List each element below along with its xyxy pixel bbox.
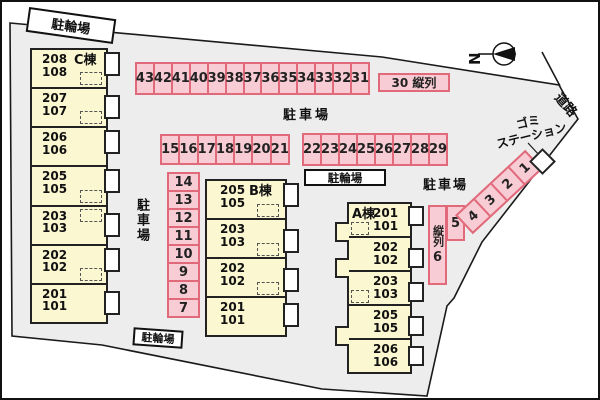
parking-space-29: 29 xyxy=(430,135,446,164)
stair-mark xyxy=(351,290,369,303)
parking-space-36: 36 xyxy=(262,64,280,93)
porch-tab xyxy=(335,326,349,346)
parking-space-24: 24 xyxy=(340,135,358,164)
parking-space-15: 15 xyxy=(162,136,180,163)
stair-mark xyxy=(80,111,102,124)
parking-space-14: 14 xyxy=(169,174,198,192)
parking-column-14-7: 14 13 12 11 10 9 8 7 xyxy=(167,172,200,318)
building-c-name: C棟 xyxy=(74,54,97,68)
parking-space-8: 8 xyxy=(169,282,198,300)
parking-space-20: 20 xyxy=(253,136,271,163)
parking-space-43: 43 xyxy=(137,64,155,93)
parking-space-25: 25 xyxy=(358,135,376,164)
parking-space-19: 19 xyxy=(235,136,253,163)
building-b-name: B棟 xyxy=(249,185,272,199)
entrance-notch xyxy=(104,213,120,237)
compass-north-arrow: N xyxy=(466,43,516,65)
stair-mark xyxy=(80,190,102,203)
parking-space-31: 31 xyxy=(352,64,368,93)
room-a-202: 202102 xyxy=(349,238,410,272)
room-c-201: 201101 xyxy=(32,285,106,322)
parking-lot-label-east: 駐車場 xyxy=(423,174,468,193)
road-edge-line xyxy=(542,52,560,86)
room-b-202: 202102 xyxy=(207,259,285,298)
stair-mark xyxy=(257,243,279,256)
entrance-notch xyxy=(283,303,299,327)
entrance-notch xyxy=(408,206,424,226)
compass-n-label: N xyxy=(466,52,484,65)
building-b: B棟 205105 203103 202102 201101 xyxy=(205,179,287,337)
stair-mark xyxy=(351,222,369,235)
entrance-notch xyxy=(283,268,299,292)
entrance-notch xyxy=(283,229,299,253)
parking-space-30-tandem: 30 縦列 xyxy=(378,73,450,92)
entrance-notch xyxy=(104,248,120,272)
entrance-notch xyxy=(408,316,424,336)
parking-space-13: 13 xyxy=(169,192,198,210)
parking-space-7: 7 xyxy=(169,300,198,316)
parking-space-6: 6 xyxy=(433,250,442,265)
parking-row-22-29: 22 23 24 25 26 27 28 29 xyxy=(302,133,448,166)
entrance-notch xyxy=(104,130,120,154)
entrance-notch xyxy=(408,346,424,366)
room-a-206: 206106 xyxy=(349,340,410,372)
entrance-notch xyxy=(104,95,120,119)
porch-tab xyxy=(335,258,349,278)
room-c-207: 207107 xyxy=(32,89,106,128)
site-plan-map: N 駐輪場 C棟 208108 207107 206106 205105 203… xyxy=(0,0,600,400)
bicycle-parking-bottom-label: 駐輪場 xyxy=(132,327,183,348)
room-b-203: 203103 xyxy=(207,220,285,259)
room-c-205: 205105 xyxy=(32,167,106,206)
parking-space-37: 37 xyxy=(245,64,263,93)
parking-space-41: 41 xyxy=(173,64,191,93)
room-c-208: C棟 208108 xyxy=(32,50,106,89)
bicycle-parking-center-label: 駐輪場 xyxy=(304,169,386,186)
parking-space-6-tandem: 縦列 6 xyxy=(428,205,447,285)
stair-mark xyxy=(80,268,102,281)
stair-mark xyxy=(257,282,279,295)
entrance-notch xyxy=(408,282,424,302)
entrance-notch xyxy=(283,183,299,207)
parking-space-32: 32 xyxy=(334,64,352,93)
stair-mark xyxy=(80,72,102,85)
parking-space-38: 38 xyxy=(227,64,245,93)
room-a-203: 203103 xyxy=(349,272,410,306)
porch-tab xyxy=(335,222,349,242)
parking-space-35: 35 xyxy=(280,64,298,93)
parking-space-16: 16 xyxy=(180,136,198,163)
entrance-notch xyxy=(408,248,424,268)
parking-space-40: 40 xyxy=(191,64,209,93)
parking-space-27: 27 xyxy=(394,135,412,164)
parking-space-12: 12 xyxy=(169,210,198,228)
parking-row-15-21: 15 16 17 18 19 20 21 xyxy=(160,134,290,165)
parking-space-17: 17 xyxy=(199,136,217,163)
room-a-205: 205105 xyxy=(349,306,410,340)
parking-space-9: 9 xyxy=(169,264,198,282)
entrance-notch xyxy=(104,52,120,76)
parking-space-28: 28 xyxy=(412,135,430,164)
room-b-201: 201101 xyxy=(207,298,285,335)
room-a-201: A棟 201101 xyxy=(349,204,410,238)
entrance-notch xyxy=(104,169,120,193)
parking-space-11: 11 xyxy=(169,228,198,246)
building-c: C棟 208108 207107 206106 205105 203103 20… xyxy=(30,48,108,324)
parking-space-22: 22 xyxy=(304,135,322,164)
parking-row-43-31: 43 42 41 40 39 38 37 36 35 34 33 32 31 xyxy=(135,62,370,95)
parking-space-39: 39 xyxy=(209,64,227,93)
room-c-202: 202102 xyxy=(32,246,106,285)
building-a-name: A棟 xyxy=(352,208,375,222)
parking-lot-label-west: 駐車場 xyxy=(132,198,151,243)
building-a: A棟 201101 202102 203103 205105 206106 xyxy=(347,202,412,374)
stair-mark xyxy=(257,204,279,217)
room-c-206: 206106 xyxy=(32,128,106,167)
room-b-205: B棟 205105 xyxy=(207,181,285,220)
parking-space-26: 26 xyxy=(376,135,394,164)
stair-mark xyxy=(80,209,102,222)
parking-space-18: 18 xyxy=(217,136,235,163)
parking-lot-label-center: 駐車場 xyxy=(283,104,331,123)
parking-space-42: 42 xyxy=(155,64,173,93)
room-c-203: 203103 xyxy=(32,207,106,246)
entrance-notch xyxy=(104,291,120,315)
tandem-label: 縦列 xyxy=(430,225,446,247)
parking-space-23: 23 xyxy=(322,135,340,164)
parking-space-10: 10 xyxy=(169,246,198,264)
parking-space-33: 33 xyxy=(316,64,334,93)
parking-space-21: 21 xyxy=(272,136,288,163)
parking-space-34: 34 xyxy=(298,64,316,93)
